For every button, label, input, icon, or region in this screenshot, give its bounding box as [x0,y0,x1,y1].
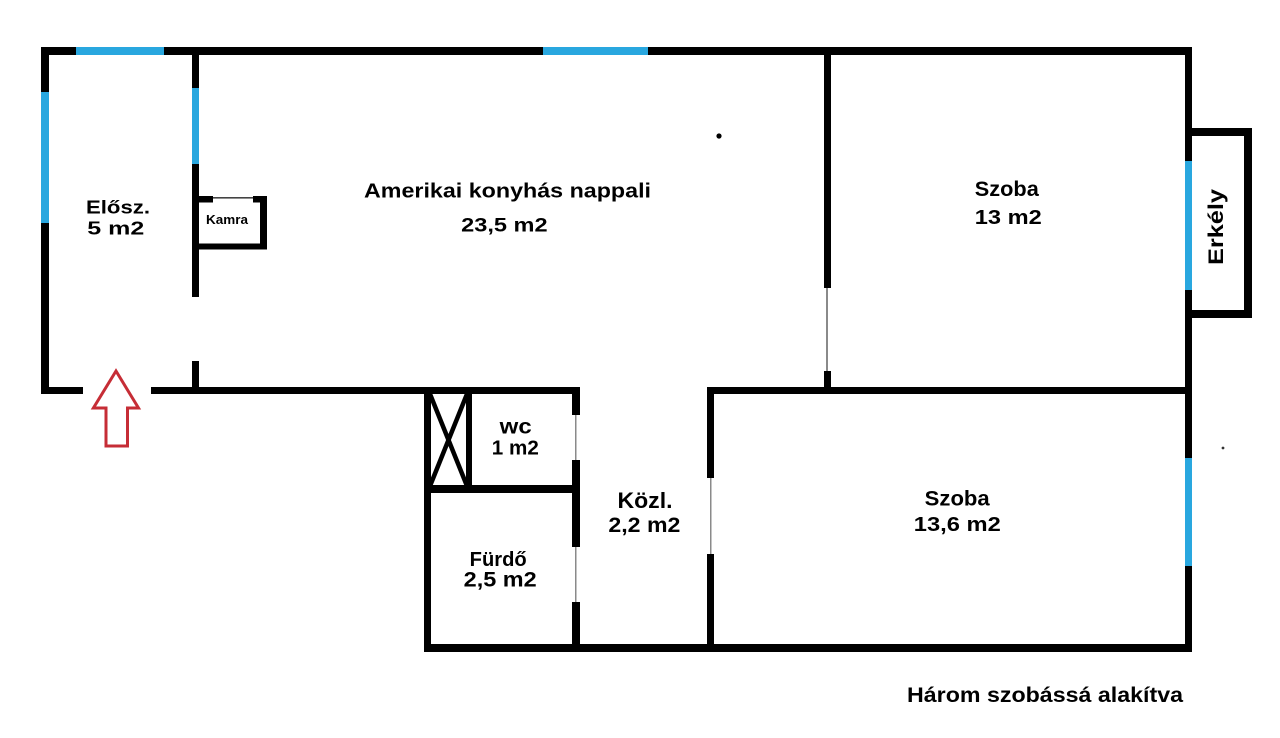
svg-text:wc: wc [499,415,533,438]
svg-text:Közl.: Közl. [618,488,673,513]
svg-text:Szoba: Szoba [925,488,990,511]
svg-text:Elősz.: Elősz. [86,198,150,218]
svg-text:13,6 m2: 13,6 m2 [914,514,1001,536]
svg-text:Szoba: Szoba [975,178,1039,201]
svg-text:Amerikai konyhás nappali: Amerikai konyhás nappali [364,181,651,203]
svg-text:Kamra: Kamra [206,212,249,227]
svg-text:23,5 m2: 23,5 m2 [461,216,548,237]
svg-text:2,2 m2: 2,2 m2 [608,514,680,537]
svg-text:2,5 m2: 2,5 m2 [464,569,537,592]
svg-text:5 m2: 5 m2 [87,219,144,239]
svg-text:13 m2: 13 m2 [975,207,1042,229]
svg-text:Erkély: Erkély [1205,189,1228,265]
svg-text:Három szobássá alakítva: Három szobássá alakítva [907,684,1183,707]
svg-text:1 m2: 1 m2 [492,437,539,459]
